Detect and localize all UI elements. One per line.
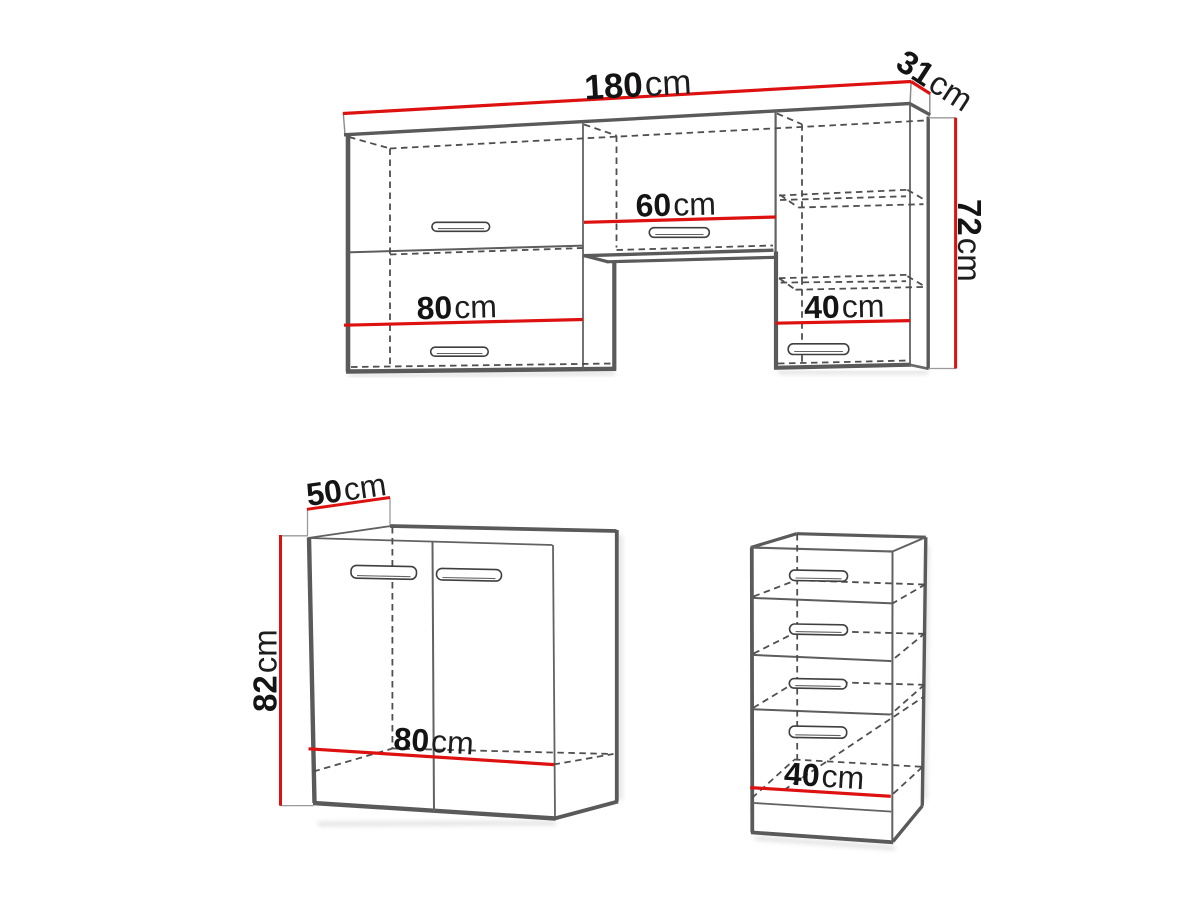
svg-text:60cm: 60cm: [635, 186, 716, 224]
svg-text:31cm: 31cm: [890, 42, 980, 118]
svg-text:40cm: 40cm: [804, 288, 885, 326]
svg-text:72cm: 72cm: [951, 199, 988, 282]
svg-text:50cm: 50cm: [304, 466, 388, 513]
svg-text:180cm: 180cm: [583, 63, 692, 108]
svg-text:80cm: 80cm: [393, 721, 475, 762]
svg-text:82cm: 82cm: [247, 629, 284, 712]
svg-text:80cm: 80cm: [416, 288, 497, 326]
svg-text:40cm: 40cm: [783, 755, 865, 796]
